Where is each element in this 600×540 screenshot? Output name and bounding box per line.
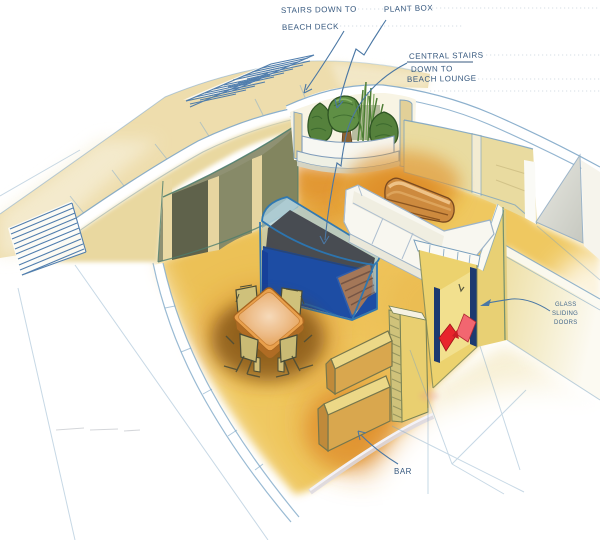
svg-text:STAIRS DOWN TO: STAIRS DOWN TO xyxy=(281,5,357,15)
svg-text:DOWN TO: DOWN TO xyxy=(411,64,453,74)
svg-text:BAR: BAR xyxy=(394,467,412,476)
svg-text:BEACH LOUNGE: BEACH LOUNGE xyxy=(407,74,477,84)
svg-text:BEACH DECK: BEACH DECK xyxy=(282,22,339,32)
svg-text:SLIDING: SLIDING xyxy=(552,311,578,317)
svg-text:GLASS: GLASS xyxy=(555,302,577,308)
svg-text:CENTRAL STAIRS: CENTRAL STAIRS xyxy=(409,51,484,61)
svg-text:PLANT BOX: PLANT BOX xyxy=(384,3,434,14)
svg-text:DOORS: DOORS xyxy=(554,320,578,326)
